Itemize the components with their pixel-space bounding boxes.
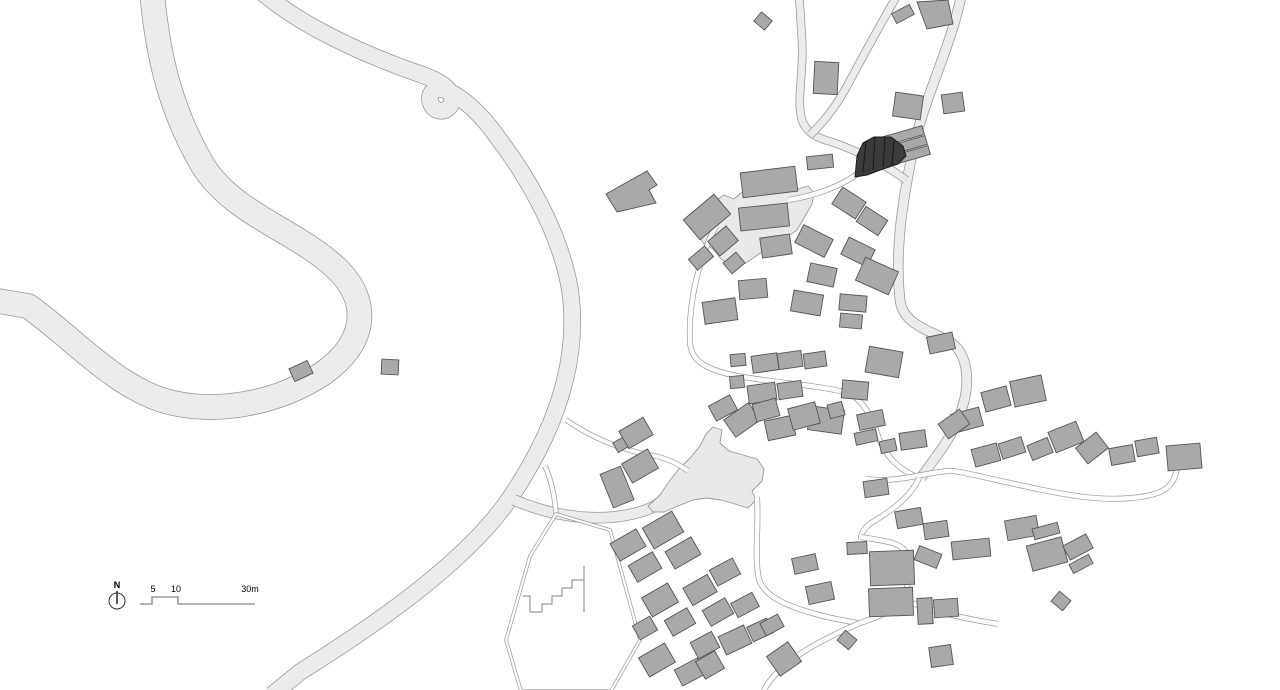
building	[971, 443, 1001, 467]
building	[709, 558, 740, 586]
building	[792, 554, 819, 575]
building	[730, 353, 746, 366]
building	[754, 12, 772, 30]
building	[933, 598, 958, 618]
building	[941, 92, 964, 114]
building	[998, 437, 1026, 460]
building	[839, 294, 867, 312]
building	[914, 546, 942, 569]
building	[760, 234, 792, 258]
building	[777, 350, 803, 369]
scale-label-10: 10	[171, 584, 181, 594]
building	[813, 61, 839, 94]
building	[951, 538, 991, 560]
serpentine-road-west-casing	[0, 0, 359, 407]
building	[639, 643, 676, 677]
building	[702, 598, 734, 627]
building	[628, 552, 662, 582]
building	[664, 608, 696, 637]
building	[381, 359, 399, 375]
building	[1109, 445, 1136, 466]
building	[665, 537, 701, 569]
building	[642, 583, 679, 617]
building	[730, 375, 745, 388]
legend: N 5 10 30m	[109, 580, 259, 609]
building	[642, 511, 683, 549]
building	[917, 598, 933, 625]
site-plan-page: N 5 10 30m	[0, 0, 1280, 690]
east-road-casing	[898, 0, 967, 478]
scale-label-5: 5	[150, 584, 155, 594]
serpentine-road-west	[0, 0, 359, 407]
building	[738, 278, 768, 299]
village-plaza	[648, 427, 764, 512]
building	[1026, 537, 1068, 571]
building	[805, 581, 834, 604]
building	[1051, 591, 1071, 611]
l-shaped-building-west	[606, 171, 657, 212]
building	[803, 351, 827, 369]
building	[865, 346, 903, 378]
building	[899, 430, 927, 450]
building	[929, 645, 954, 668]
building	[807, 263, 837, 287]
building	[806, 154, 833, 170]
building	[857, 409, 886, 430]
building	[688, 246, 713, 270]
building	[863, 478, 889, 497]
building	[847, 541, 868, 554]
building	[1166, 443, 1202, 471]
building	[923, 520, 949, 539]
building	[751, 353, 779, 373]
building	[1135, 437, 1159, 457]
building	[1010, 375, 1047, 407]
building	[839, 313, 862, 329]
building	[895, 507, 924, 528]
building	[854, 429, 878, 445]
building	[1027, 437, 1053, 460]
parcel-terrace-steps	[523, 566, 584, 612]
building	[683, 574, 717, 605]
building	[790, 290, 823, 316]
building	[981, 386, 1011, 412]
building	[869, 587, 914, 617]
north-label: N	[114, 580, 121, 590]
scale-bar	[140, 597, 255, 604]
site-plan-map: N 5 10 30m	[0, 0, 1280, 690]
building	[731, 592, 760, 617]
main-road-center	[262, 0, 572, 690]
building	[702, 298, 738, 324]
building	[892, 92, 923, 120]
building	[718, 625, 752, 655]
building	[738, 203, 789, 231]
building	[869, 550, 914, 586]
scale-label-30m: 30m	[241, 584, 259, 594]
building	[777, 380, 803, 399]
building	[841, 380, 868, 400]
building	[795, 225, 833, 258]
wedge-building-north	[917, 0, 953, 29]
building	[766, 642, 801, 677]
